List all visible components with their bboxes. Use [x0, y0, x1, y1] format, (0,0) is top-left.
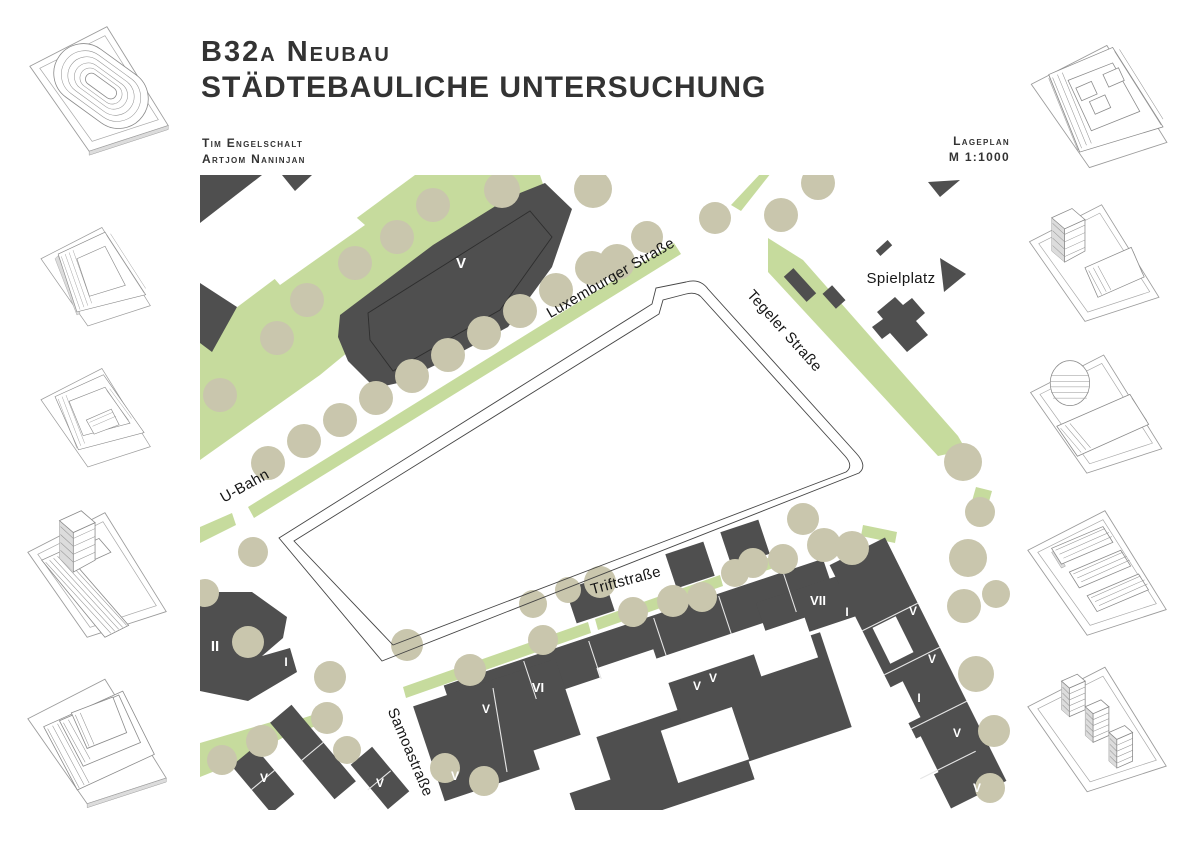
tree	[947, 589, 981, 623]
building-storey-label-7: V	[482, 702, 490, 716]
building-storey-label-15: VII	[810, 593, 826, 608]
tree	[431, 338, 465, 372]
building	[940, 258, 966, 292]
building-storey-label-0: V	[456, 255, 466, 272]
tree	[738, 548, 768, 578]
tree	[835, 531, 869, 565]
massing-sketch-three-point-towers	[1016, 648, 1184, 813]
tree	[238, 537, 268, 567]
massing-sketch-stadium-ring-block	[18, 10, 186, 170]
tree	[574, 175, 612, 208]
tree	[958, 656, 994, 692]
tree	[203, 378, 237, 412]
tree	[687, 582, 717, 612]
tree	[380, 220, 414, 254]
massing-sketch-wedge-with-corner-tower	[1016, 190, 1178, 338]
tree	[555, 577, 581, 603]
tree	[207, 745, 237, 775]
plan-scale: M 1:1000	[949, 149, 1010, 165]
building-storey-label-16: I	[845, 605, 848, 619]
tree	[311, 702, 343, 734]
page-title-line2: Städtebauliche Untersuchung	[201, 69, 766, 107]
green-area	[731, 175, 771, 211]
building	[928, 180, 960, 197]
tree	[323, 403, 357, 437]
plan-label: Lageplan M 1:1000	[949, 133, 1010, 165]
building-storey-label-8: V	[451, 769, 459, 783]
massing-sketch-round-tower-with-slab	[1016, 340, 1182, 490]
authors: Tim Engelschalt Artjom Naninjan	[202, 135, 306, 167]
tree	[359, 381, 393, 415]
tree	[801, 175, 835, 200]
building-storey-label-1: II	[211, 638, 219, 655]
tree	[519, 590, 547, 618]
tree	[287, 424, 321, 458]
building-storey-label-13: V	[709, 671, 717, 685]
tree	[467, 316, 501, 350]
tree	[391, 629, 423, 661]
building-storey-label-5: V	[376, 776, 384, 790]
building	[872, 297, 928, 352]
tree	[314, 661, 346, 693]
tree	[787, 503, 819, 535]
massing-sketch-slab-with-tower	[16, 492, 184, 660]
tree	[944, 443, 982, 481]
building	[282, 175, 312, 191]
building-storey-label-10: V	[603, 704, 611, 718]
tree	[978, 715, 1010, 747]
author-1: Tim Engelschalt	[202, 135, 306, 151]
building-storey-label-12: V	[693, 679, 701, 693]
building-storey-label-19: I	[917, 691, 920, 705]
tree	[982, 580, 1010, 608]
building-storey-label-4: V	[306, 775, 314, 789]
tree	[657, 585, 689, 617]
tree	[949, 539, 987, 577]
tree	[290, 283, 324, 317]
tree	[232, 626, 264, 658]
building	[876, 240, 892, 256]
tree	[246, 725, 278, 757]
massing-sketch-courtyard-comb-block	[1018, 30, 1186, 185]
building-storey-label-14: V	[781, 656, 789, 670]
street-label-5: Spielplatz	[866, 270, 935, 287]
tree	[395, 359, 429, 393]
massing-sketch-perimeter-triangle-b	[18, 356, 178, 481]
tree	[764, 198, 798, 232]
tree	[469, 766, 499, 796]
presentation-board: B32a Neubau Städtebauliche Untersuchung …	[0, 0, 1200, 849]
tree	[416, 188, 450, 222]
building-storey-label-20: V	[953, 726, 961, 740]
tree	[333, 736, 361, 764]
tree	[454, 654, 486, 686]
site-plan: Luxemburger StraßeTegeler StraßeTriftstr…	[200, 175, 1010, 810]
page-title-line1: B32a Neubau	[201, 36, 766, 69]
tree	[965, 497, 995, 527]
massing-sketch-terraced-block	[16, 660, 184, 825]
building-storey-label-21: V	[973, 781, 981, 795]
tree	[260, 321, 294, 355]
building-storey-label-17: V	[909, 604, 917, 618]
massing-sketch-three-parallel-slabs	[1016, 494, 1184, 654]
tree	[699, 202, 731, 234]
building-storey-label-6: VI	[532, 680, 544, 695]
building-storey-label-11: V	[620, 700, 628, 714]
building-storey-label-18: V	[928, 652, 936, 666]
site-plan-svg: Luxemburger StraßeTegeler StraßeTriftstr…	[200, 175, 1010, 810]
green-area	[200, 513, 236, 543]
massing-sketch-perimeter-triangle-a	[18, 215, 178, 340]
building-storey-label-3: V	[260, 771, 268, 785]
tree	[503, 294, 537, 328]
building	[200, 175, 262, 223]
tree	[528, 625, 558, 655]
building-storey-label-2: I	[284, 655, 287, 669]
tree	[618, 597, 648, 627]
author-2: Artjom Naninjan	[202, 151, 306, 167]
plan-type: Lageplan	[949, 133, 1010, 149]
building-storey-label-9: V	[554, 762, 562, 776]
title-block: B32a Neubau Städtebauliche Untersuchung	[201, 36, 766, 107]
tree	[768, 544, 798, 574]
tree	[338, 246, 372, 280]
